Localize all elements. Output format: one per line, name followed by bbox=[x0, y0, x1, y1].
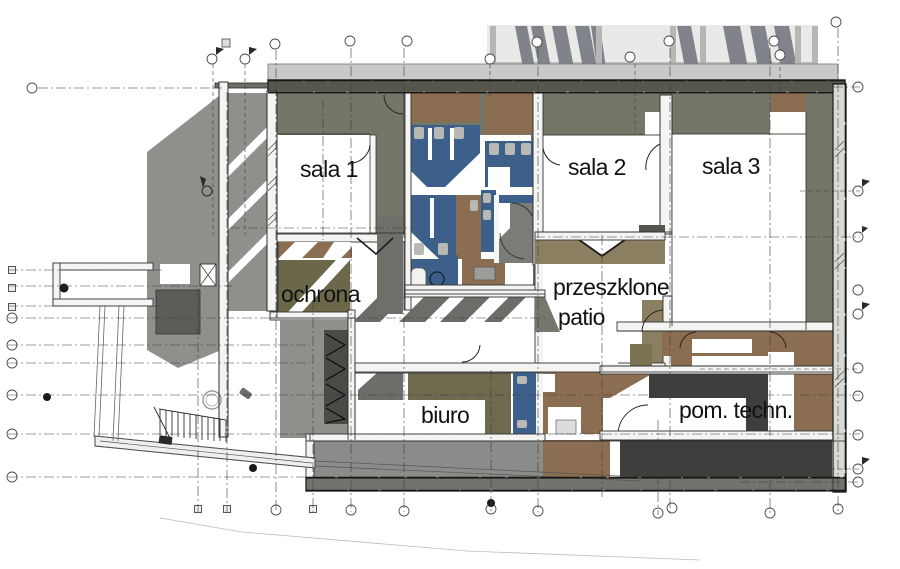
svg-text:sala 1: sala 1 bbox=[300, 156, 358, 182]
svg-text:biuro: biuro bbox=[421, 402, 469, 428]
svg-text:pom. techn.: pom. techn. bbox=[679, 397, 793, 423]
svg-text:sala 3: sala 3 bbox=[702, 153, 760, 179]
svg-text:ochrona: ochrona bbox=[281, 281, 361, 307]
svg-text:patio: patio bbox=[558, 304, 605, 330]
svg-text:sala 2: sala 2 bbox=[568, 154, 626, 180]
svg-text:przeszklone: przeszklone bbox=[553, 274, 669, 300]
